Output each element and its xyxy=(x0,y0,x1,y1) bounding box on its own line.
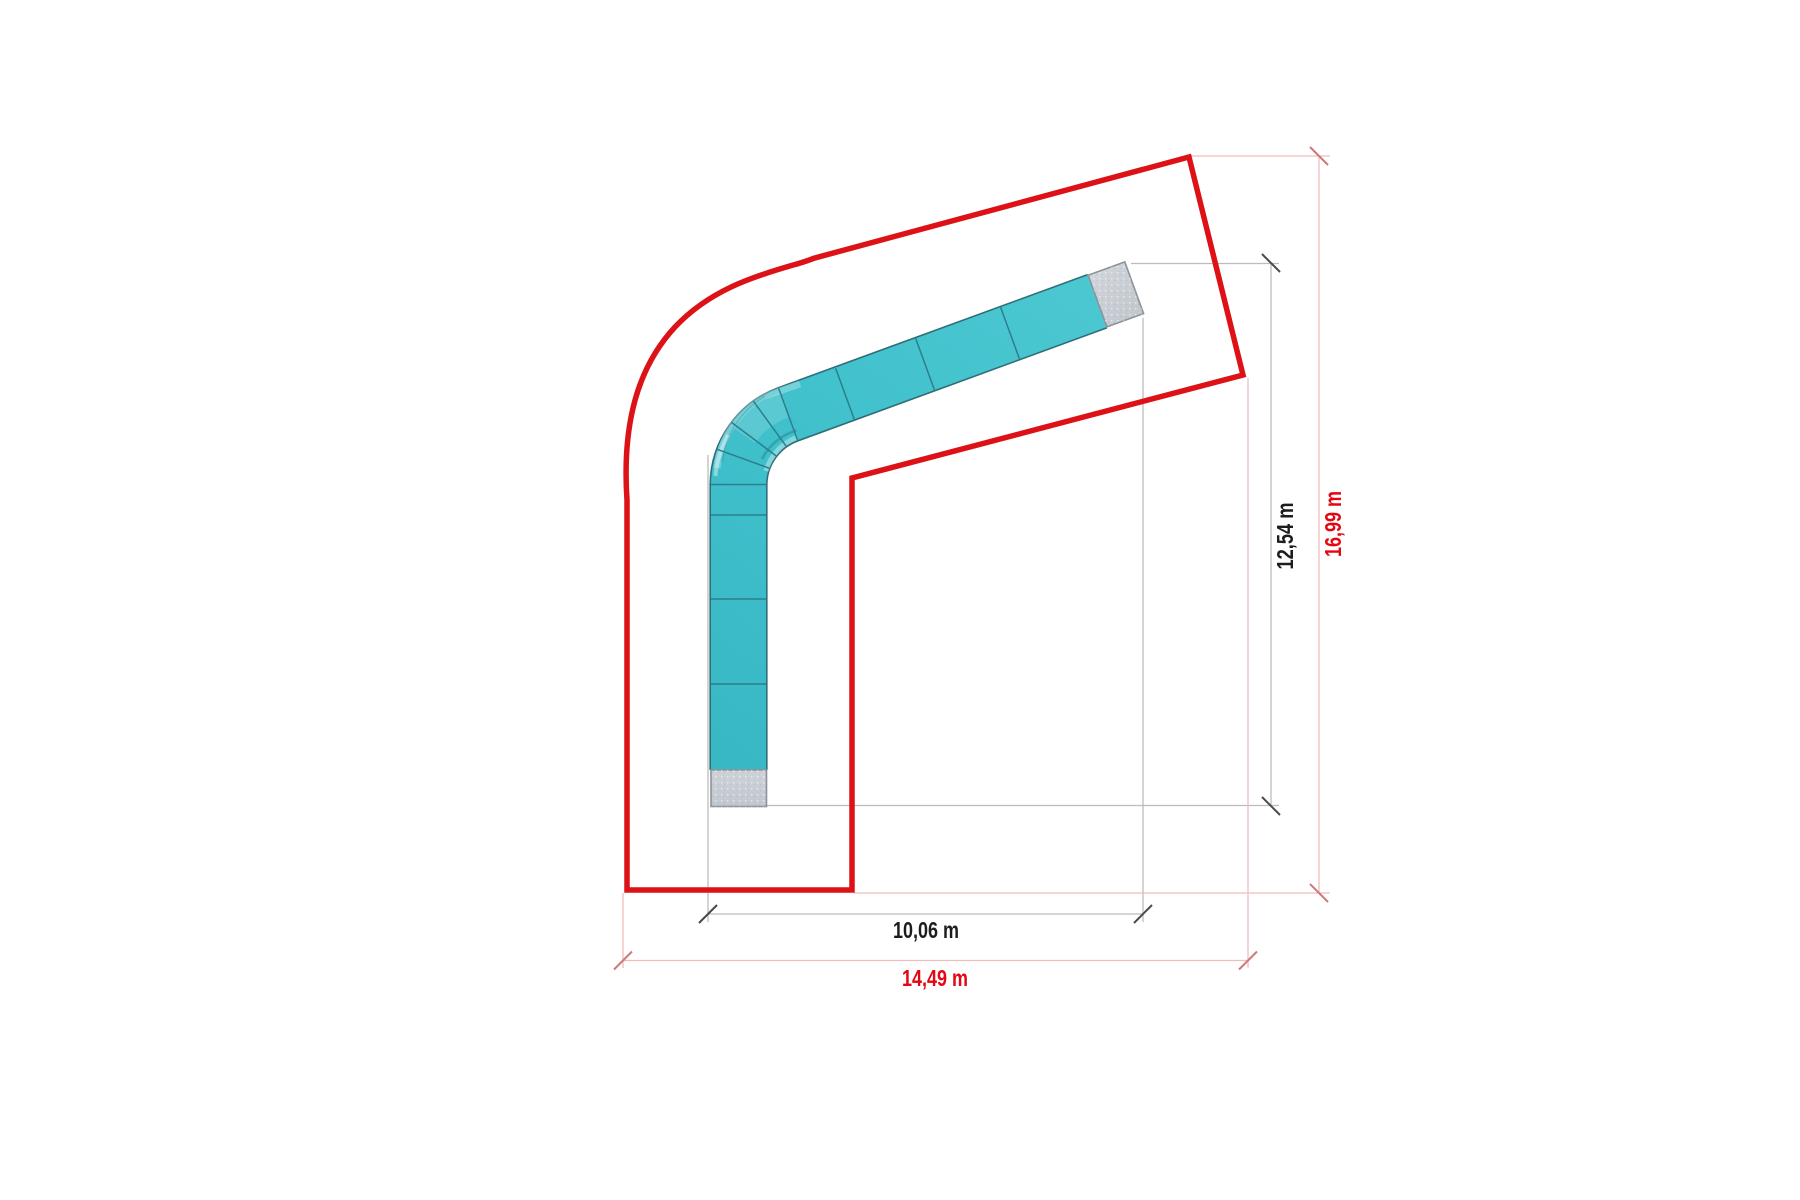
slide-flume xyxy=(711,262,1144,807)
plan-drawing-canvas: 10,06 m 14,49 m 12,54 m 16,99 m xyxy=(0,0,1800,1200)
dimension-label-outer-height: 16,99 m xyxy=(1320,491,1346,557)
flume-body xyxy=(739,301,1098,770)
slide-plan-drawing: 10,06 m 14,49 m 12,54 m 16,99 m xyxy=(0,0,1800,1200)
slide-end-cap-bottom-texture xyxy=(711,770,767,807)
dimension-label-inner-height: 12,54 m xyxy=(1272,503,1298,570)
dimension-label-inner-width: 10,06 m xyxy=(893,917,959,943)
dimension-label-outer-width: 14,49 m xyxy=(902,965,968,991)
